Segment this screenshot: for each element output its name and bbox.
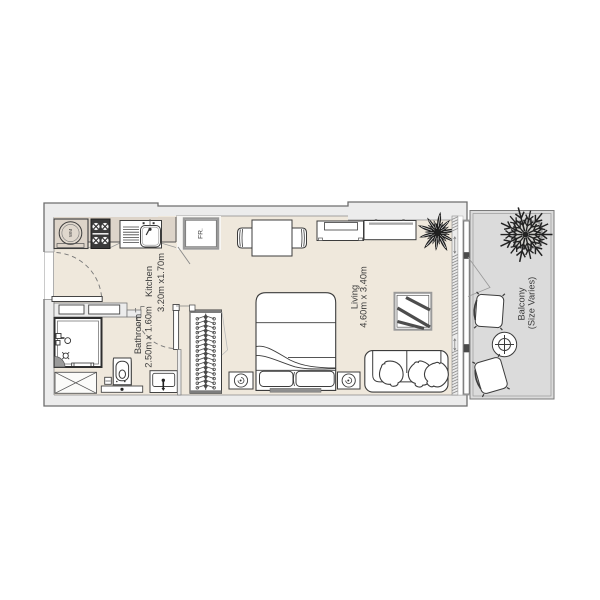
- svg-text:Balcony: Balcony: [517, 287, 527, 320]
- svg-text:Kitchen: Kitchen: [144, 266, 154, 297]
- svg-text:3.20m x1.70m: 3.20m x1.70m: [156, 253, 166, 312]
- svg-text:FR.: FR.: [198, 228, 205, 239]
- svg-text:Bathroom: Bathroom: [133, 314, 143, 355]
- svg-text:WM: WM: [68, 229, 73, 237]
- svg-text:2.50m x 1.60m: 2.50m x 1.60m: [144, 306, 154, 368]
- svg-text:(Size Varies): (Size Varies): [527, 277, 537, 330]
- svg-text:4.60m x 3.40m: 4.60m x 3.40m: [359, 266, 369, 328]
